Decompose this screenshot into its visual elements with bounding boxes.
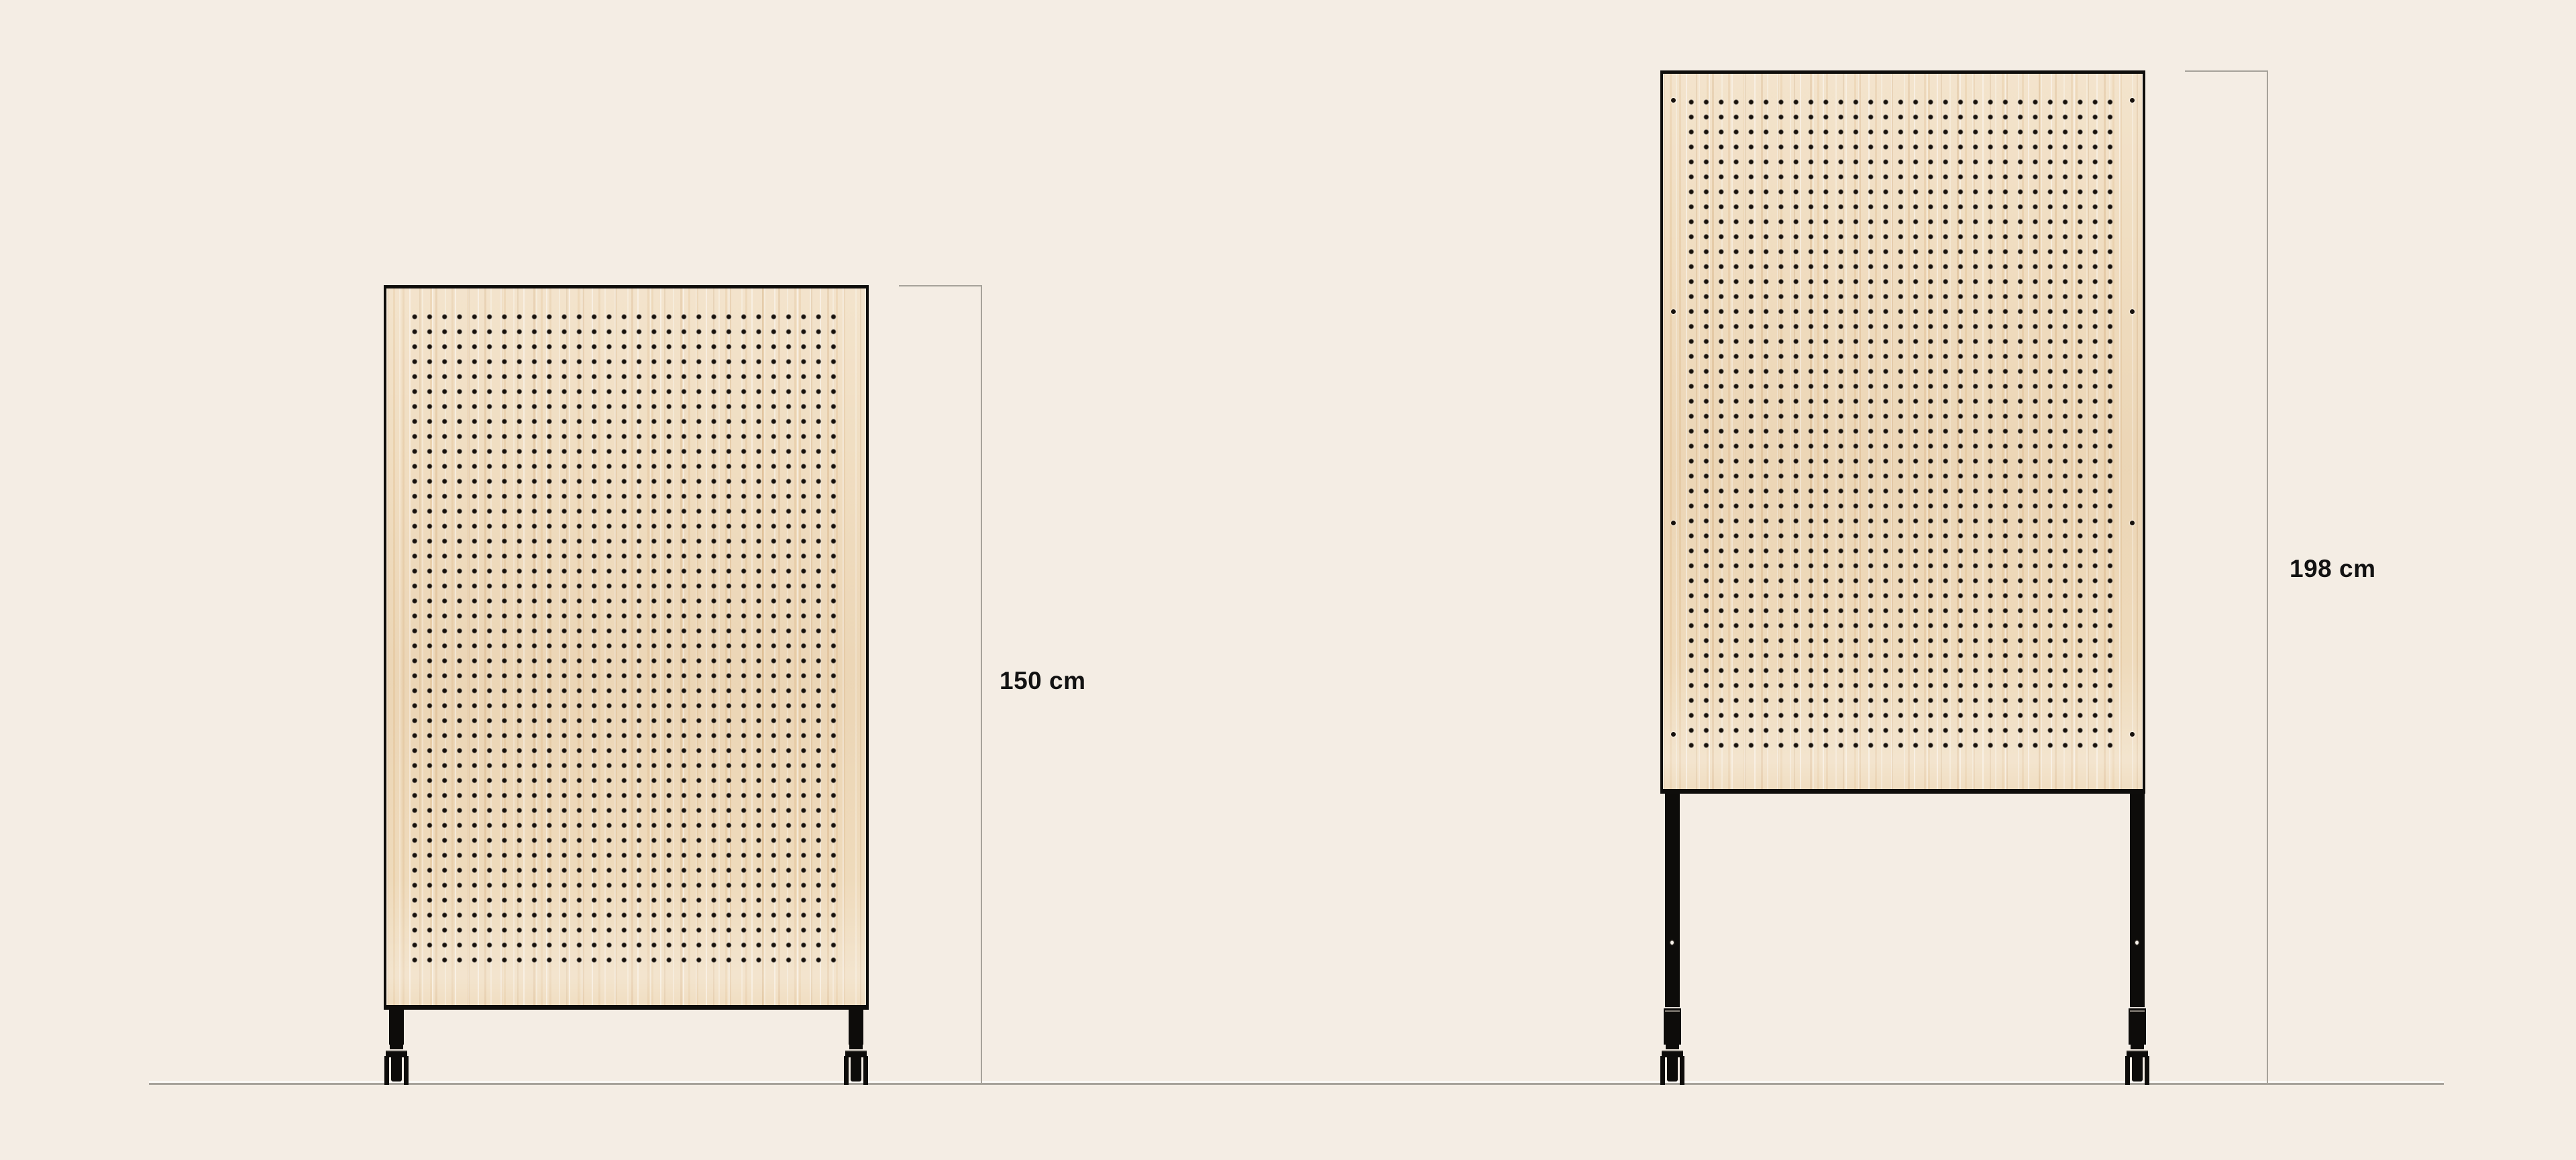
wheel xyxy=(391,1057,402,1082)
edge-screw xyxy=(2130,521,2135,525)
edge-screw xyxy=(2130,309,2135,314)
caster-wheel xyxy=(383,1045,410,1085)
dimension-label-198cm: 198 cm xyxy=(2290,554,2376,584)
caster-wheel xyxy=(1659,1045,1686,1085)
edge-screw xyxy=(1671,98,1676,103)
peg-holes-grid xyxy=(407,309,841,967)
dimension-tick-top xyxy=(2185,70,2268,72)
caster-fork xyxy=(844,1056,868,1085)
floor-line xyxy=(149,1083,2444,1085)
leg-sleeve xyxy=(1664,1008,1681,1045)
caster-stem xyxy=(2131,1045,2144,1049)
wheel xyxy=(851,1057,861,1082)
peg-holes-grid xyxy=(1684,95,2118,753)
wheel xyxy=(2132,1057,2143,1082)
pegboard-panel-150 xyxy=(384,285,869,1010)
edge-screw xyxy=(1671,732,1676,737)
dimension-diagram: 150 cm xyxy=(0,0,2576,1160)
leg-sleeve xyxy=(2129,1008,2146,1045)
edge-screw xyxy=(1671,521,1676,525)
caster-wheel xyxy=(843,1045,869,1085)
leg-adjustment-hole xyxy=(1670,941,1674,945)
panel-leg-long xyxy=(2130,794,2145,1008)
wheel xyxy=(1667,1057,1678,1082)
dimension-tick-top xyxy=(899,285,982,286)
panel-leg xyxy=(849,1010,863,1045)
caster-fork xyxy=(384,1056,409,1085)
caster-fork xyxy=(1660,1056,1684,1085)
dimension-line-vertical xyxy=(2267,70,2268,1084)
dimension-label-150cm: 150 cm xyxy=(1000,666,1086,696)
leg-adjustment-hole xyxy=(2135,941,2139,945)
panel-leg xyxy=(389,1010,404,1045)
pegboard-panel-198 xyxy=(1660,70,2145,794)
edge-screw xyxy=(2130,98,2135,103)
edge-screw xyxy=(2130,732,2135,737)
caster-stem xyxy=(849,1045,863,1049)
caster-stem xyxy=(390,1045,403,1049)
dimension-line-vertical xyxy=(981,285,982,1084)
caster-wheel xyxy=(2124,1045,2151,1085)
edge-screw xyxy=(1671,309,1676,314)
panel-leg-long xyxy=(1665,794,1680,1008)
caster-fork xyxy=(2125,1056,2149,1085)
caster-stem xyxy=(1666,1045,1679,1049)
